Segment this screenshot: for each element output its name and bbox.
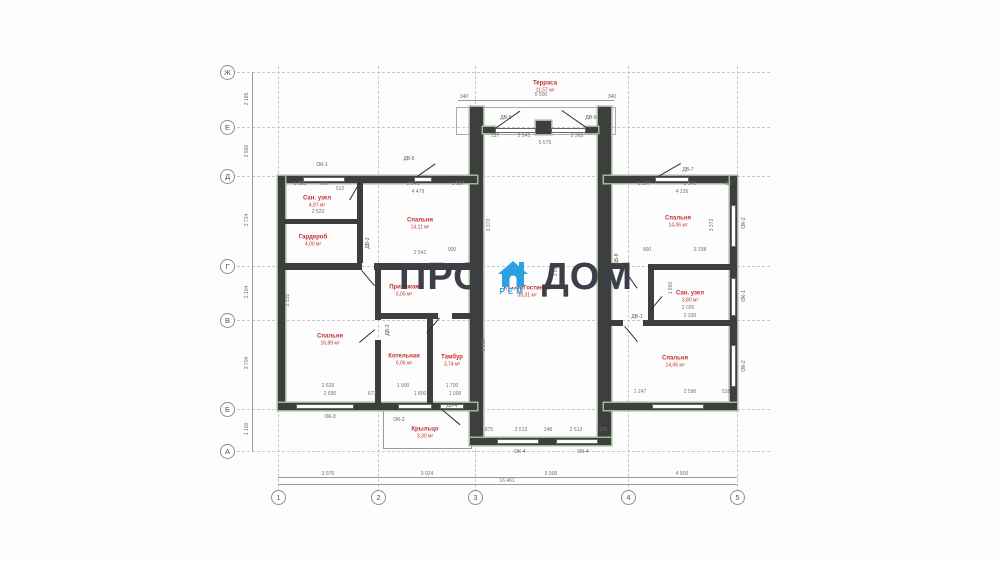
opening-label: ДВ-3 (385, 324, 391, 335)
dimension-label: 3 373 (486, 219, 492, 232)
dimension-label: 3 338 (694, 247, 707, 253)
dimension-label: 16 461 (499, 478, 514, 484)
room-area: 14,11 м² (407, 225, 433, 231)
opening-label: ДВ-9 (500, 115, 511, 121)
window-opening (731, 278, 736, 316)
dimension-label: 3 976 (322, 471, 335, 477)
opening-label: ДВ-9 (585, 115, 596, 121)
dimension-label: 3 100 (481, 339, 487, 352)
dimension-label: 5 500 (535, 92, 548, 98)
dimension-label: 2 330 (684, 313, 697, 319)
room-area: 3,74 м² (441, 362, 463, 368)
dimension-label: 2 590 (324, 391, 337, 397)
opening-label: ОК-2 (741, 217, 747, 228)
opening-label: ОК-1 (316, 162, 327, 168)
window-opening (652, 404, 704, 409)
dimension-label: 1 900 (397, 383, 410, 389)
dimension-label: 3 024 (421, 471, 434, 477)
axis-bubble: В (220, 313, 235, 328)
room-name: Терраса (533, 80, 557, 86)
dimension-label: 1 247 (634, 389, 647, 395)
dimension-label: 1 587 (452, 181, 465, 187)
dimension-label: 487 (724, 181, 732, 187)
room-area: 4,97 м² (303, 203, 331, 209)
dimension-label: 1 800 (414, 391, 427, 397)
room-label: Сан. узел4,97 м² (303, 195, 331, 208)
dimension-label: 4 500 (676, 471, 689, 477)
wall-segment (285, 263, 362, 270)
room-area: 3,30 м² (411, 434, 438, 440)
wall-segment (648, 264, 654, 326)
window-opening (398, 404, 432, 409)
opening-label: ОК-4 (577, 449, 588, 455)
dimension-label: 1 382 (294, 181, 307, 187)
dimension-label: 900 (448, 247, 456, 253)
axis-bubble: 5 (730, 490, 745, 505)
dimension-label: 2 541 (407, 181, 420, 187)
dimension-label: 2 541 (518, 133, 531, 139)
opening-label: ОК-3 (324, 414, 335, 420)
dimension-label: 690 (320, 181, 328, 187)
opening-label: ДВ-6 (403, 156, 414, 162)
dimension-label: 2 541 (684, 181, 697, 187)
logo-word-left: ПРО (399, 260, 484, 294)
wall-segment (586, 127, 598, 133)
room-name: Сан. узел (303, 195, 331, 201)
dimension-label: 2 513 (570, 427, 583, 433)
opening-label: ОК-2 (393, 417, 404, 423)
room-label: Сан. узел3,80 м² (676, 290, 704, 303)
dimension-label: 900 (643, 247, 651, 253)
dimension-label: 3 724 (244, 214, 250, 227)
dimension-label: 5 000 (545, 471, 558, 477)
dimension-label: 2 185 (244, 93, 250, 106)
opening-label: ДВ-2 (365, 237, 371, 248)
room-name: Сан. узел (676, 290, 704, 296)
room-name: Спальня (665, 215, 691, 221)
dimension-line (458, 100, 614, 101)
dimension-label: 2 960 (244, 145, 250, 158)
room-name: Котельная (388, 353, 419, 359)
dimension-label: 1 100 (244, 423, 250, 436)
wall-segment (536, 121, 551, 134)
dimension-label: 875 (485, 427, 493, 433)
room-label: Спальня16,89 м² (317, 333, 343, 346)
dimension-label: 2 365 (571, 133, 584, 139)
dimension-label: 1 000 (449, 391, 462, 397)
dimension-label: 3 704 (244, 357, 250, 370)
door-swing-line (417, 163, 436, 176)
axis-bubble: Е (220, 120, 235, 135)
room-area: 3,80 м² (676, 298, 704, 304)
opening-label: ДВ-7 (682, 167, 693, 173)
dimension-label: 2 629 (322, 383, 335, 389)
dimension-label: 1 167 (638, 181, 651, 187)
room-name: Спальня (317, 333, 343, 339)
dimension-label: 2 026 (682, 305, 695, 311)
dimension-label: 2 590 (684, 389, 697, 395)
door-swing-line (361, 270, 375, 286)
room-label: Гардероб4,00 м² (299, 234, 327, 247)
logo-center: РЕМ (496, 260, 530, 296)
room-area: 6,06 м² (388, 361, 419, 367)
room-label: Котельная6,06 м² (388, 353, 419, 366)
axis-bubble: 4 (621, 490, 636, 505)
dimension-label: 248 (544, 427, 552, 433)
dimension-label: 2 104 (244, 286, 250, 299)
room-label: Спальня14,11 м² (407, 217, 433, 230)
axis-bubble: 1 (271, 490, 286, 505)
dimension-label: 340 (460, 94, 468, 100)
room-area: 14,06 м² (662, 363, 688, 369)
room-name: Спальня (407, 217, 433, 223)
room-label: Спальня14,06 м² (665, 215, 691, 228)
opening-label: ДВ-1 (631, 314, 642, 320)
room-label: Крыльцо3,30 м² (411, 426, 438, 439)
wall-segment (278, 176, 285, 410)
wall-segment (611, 320, 623, 326)
dimension-label: 2 523 (312, 209, 325, 215)
room-name: Крыльцо (411, 426, 438, 432)
axis-bubble: Б (220, 402, 235, 417)
window-opening (296, 404, 354, 409)
grid-line (222, 72, 770, 73)
dimension-label: 4 226 (676, 189, 689, 195)
dimension-label: 2 513 (515, 427, 528, 433)
window-opening (731, 205, 736, 247)
wall-segment (357, 183, 363, 263)
window-opening (556, 439, 598, 444)
house-icon (497, 260, 529, 288)
axis-bubble: Ж (220, 65, 235, 80)
door-swing-line (658, 163, 681, 177)
dimension-label: 518 (722, 389, 730, 395)
room-area: 16,89 м² (317, 341, 343, 347)
dimension-label: 3 373 (709, 219, 715, 232)
dimension-line (278, 484, 737, 485)
logo-sub-word: РЕМ (500, 287, 526, 296)
room-name: Тамбур (441, 354, 463, 360)
wall-segment (452, 313, 470, 319)
axis-bubble: 3 (468, 490, 483, 505)
axis-bubble: А (220, 444, 235, 459)
door-swing-line (359, 329, 375, 343)
dimension-label: 1 650 (668, 282, 674, 295)
axis-bubble: Г (220, 259, 235, 274)
wall-segment (643, 320, 737, 326)
room-name: Гардероб (299, 234, 327, 240)
opening-label: ДВ-4 (446, 403, 457, 409)
dimension-label: 340 (608, 94, 616, 100)
floor-plan-canvas: ЖЕДГВБА12345 Терраса11,57 м²Сан. узел4,9… (0, 0, 1000, 563)
dimension-label: 175 (599, 427, 607, 433)
room-name: Спальня (662, 355, 688, 361)
dimension-label: 5 575 (539, 140, 552, 146)
wall-segment (285, 219, 357, 224)
room-area: 14,06 м² (665, 223, 691, 229)
dimension-label: 1 700 (446, 383, 459, 389)
dimension-line (252, 72, 253, 451)
watermark-logo: ПРО РЕМ ДОМ (399, 260, 633, 296)
window-opening (731, 345, 736, 387)
grid-line (222, 451, 770, 452)
dimension-label: 137 (491, 133, 499, 139)
dimension-label: 4 479 (412, 189, 425, 195)
room-label: Спальня14,06 м² (662, 355, 688, 368)
grid-line (737, 66, 738, 492)
axis-bubble: Д (220, 169, 235, 184)
opening-label: ОК-4 (514, 449, 525, 455)
door-swing-line (624, 326, 638, 342)
wall-segment (648, 264, 737, 270)
dimension-label: 2 132 (285, 294, 291, 307)
axis-bubble: 2 (371, 490, 386, 505)
room-label: Тамбур3,74 м² (441, 354, 463, 367)
dimension-label: 673 (368, 391, 376, 397)
logo-word-right: ДОМ (542, 260, 633, 294)
room-area: 4,00 м² (299, 242, 327, 248)
opening-label: ОК-1 (741, 290, 747, 301)
dimension-label: 512 (336, 186, 344, 192)
opening-label: ОК-2 (741, 360, 747, 371)
window-opening (497, 439, 539, 444)
